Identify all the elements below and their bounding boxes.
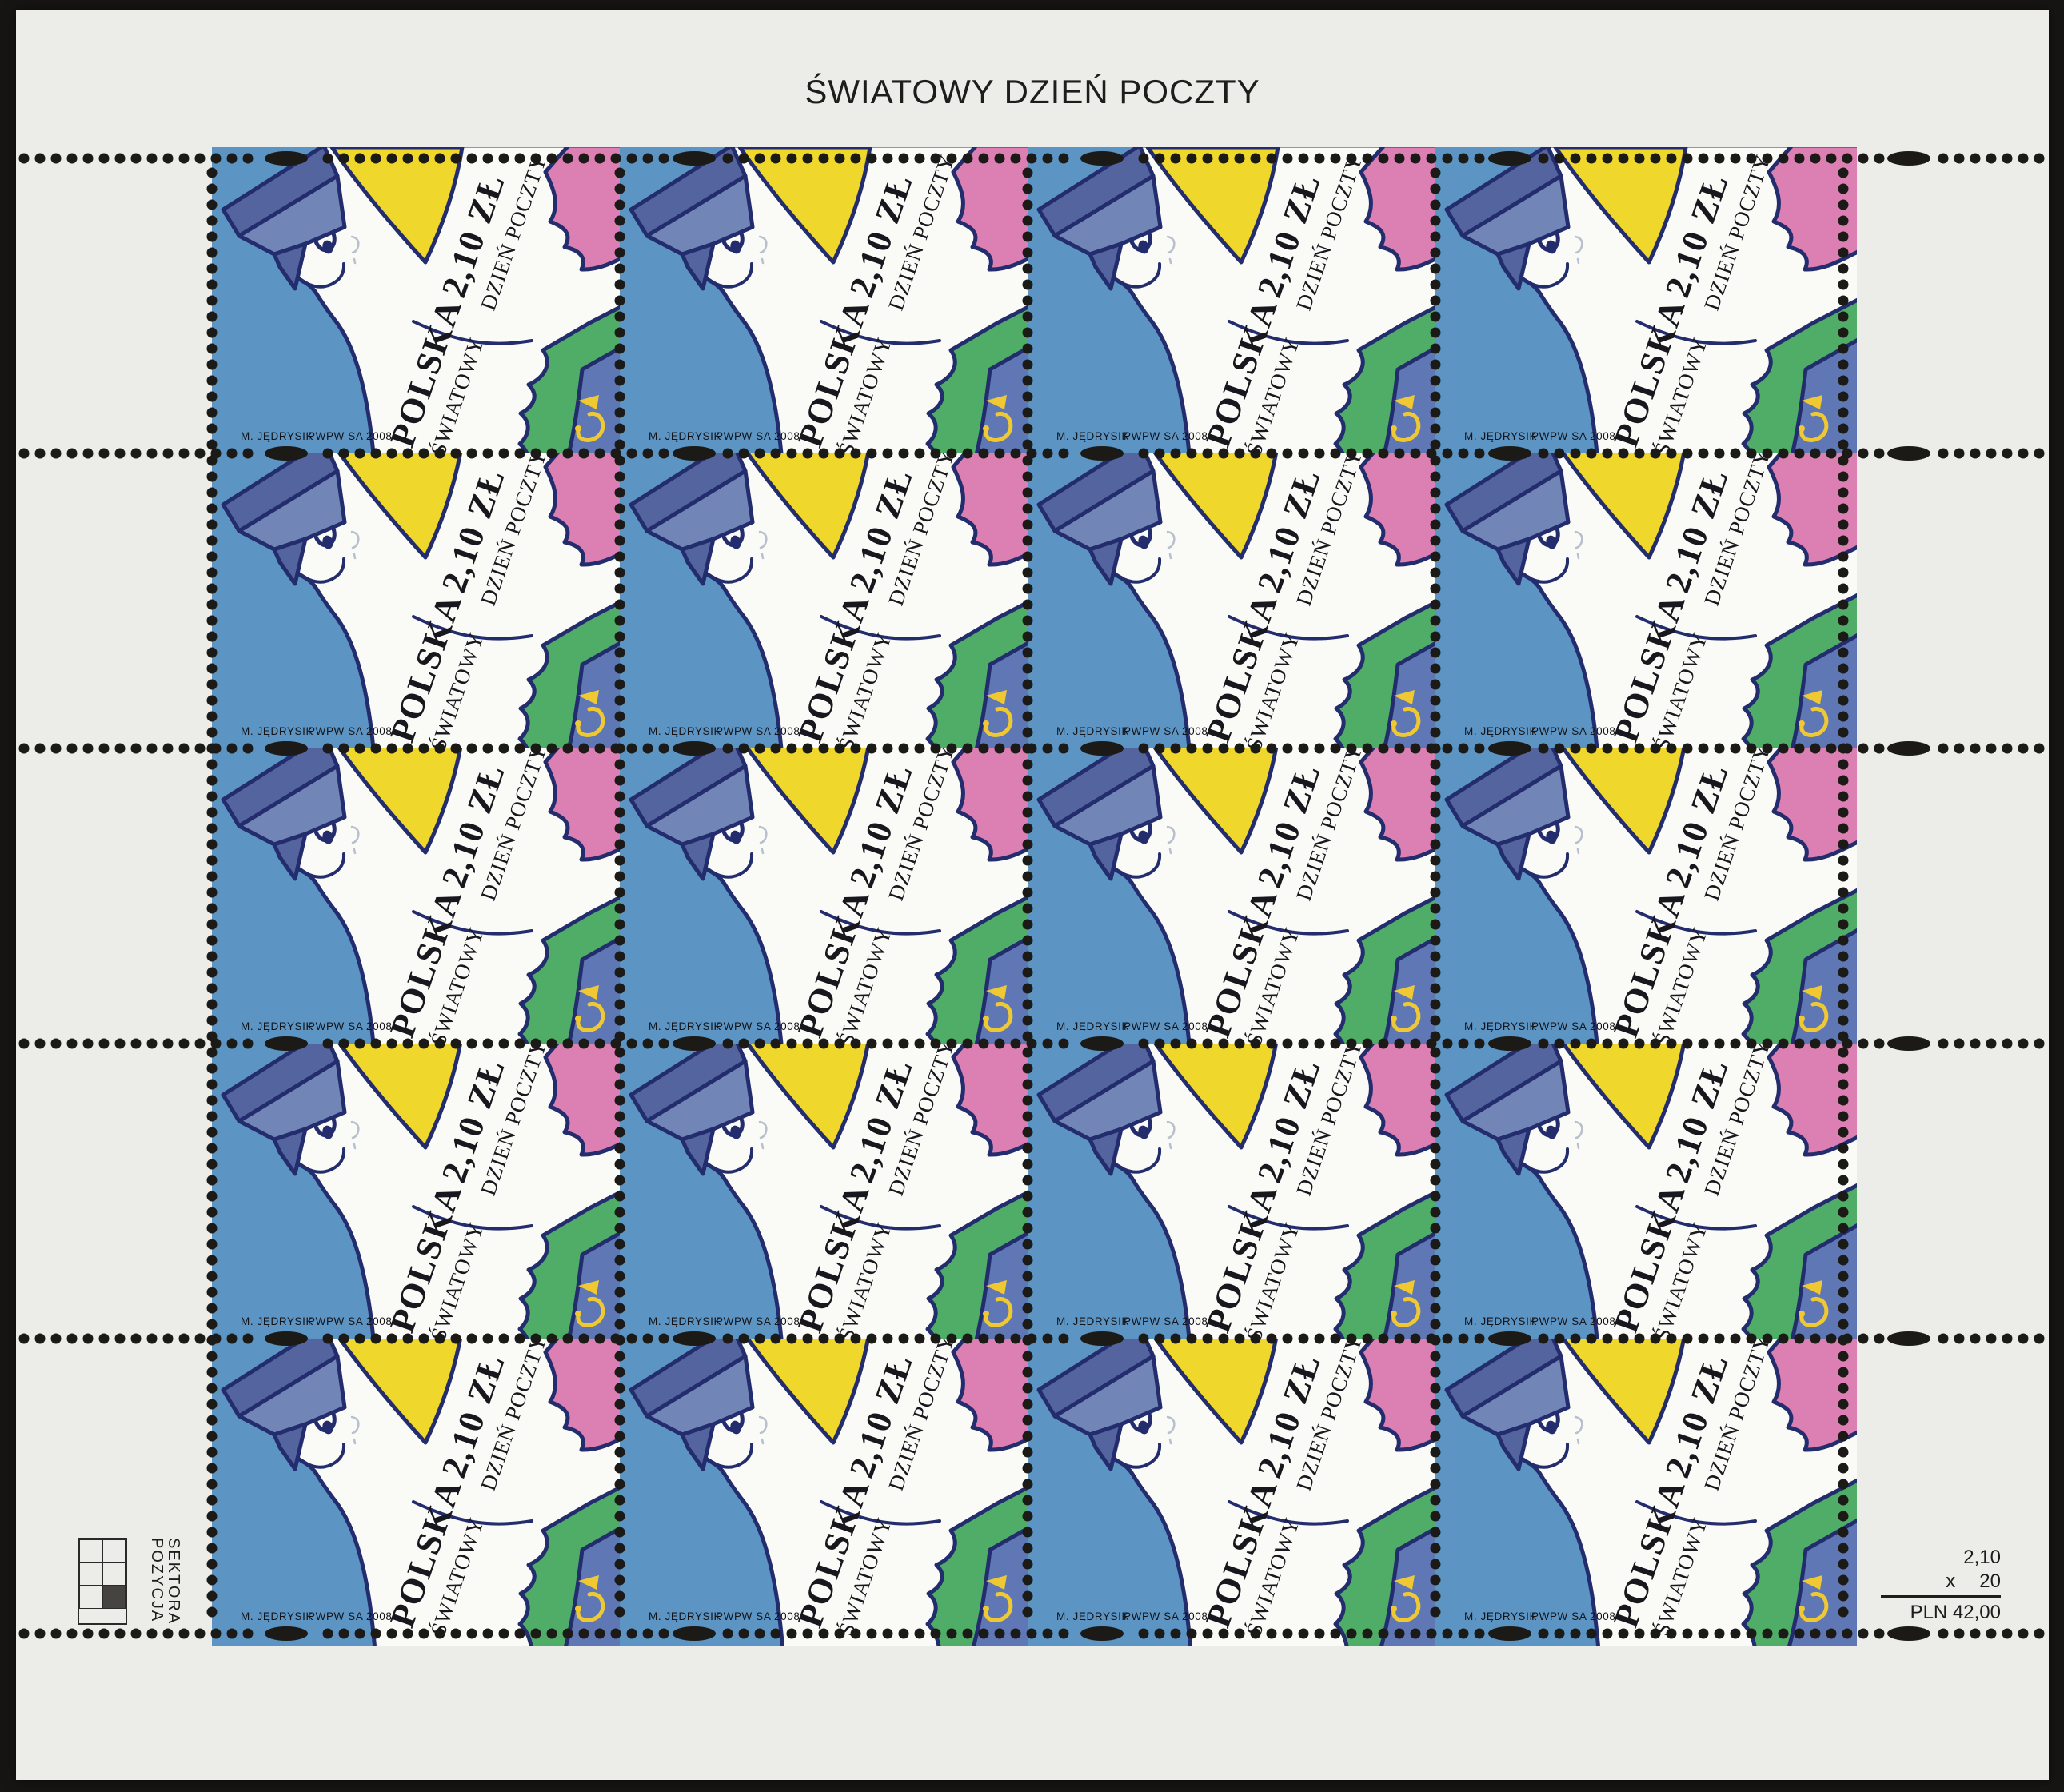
stamp: POLSKA 2,10 ZŁ ŚWIATOWY DZIEŃ POCZTY M. … <box>1028 748 1435 1044</box>
stamp: POLSKA 2,10 ZŁ ŚWIATOWY DZIEŃ POCZTY M. … <box>620 1044 1028 1339</box>
designer-imprint: M. JĘDRYSIK <box>1056 1020 1129 1032</box>
price-calculation: 2,10 x 20 PLN 42,00 <box>1881 1546 2001 1625</box>
printer-imprint: PWPW SA 2008 <box>308 1610 393 1622</box>
printer-imprint: PWPW SA 2008 <box>716 725 800 737</box>
printer-imprint: PWPW SA 2008 <box>716 1315 800 1327</box>
designer-imprint: M. JĘDRYSIK <box>241 1315 313 1327</box>
stamp: POLSKA 2,10 ZŁ ŚWIATOWY DZIEŃ POCZTY M. … <box>1028 1339 1435 1646</box>
printer-imprint: PWPW SA 2008 <box>308 430 393 442</box>
printer-imprint: PWPW SA 2008 <box>308 725 393 737</box>
stamp: POLSKA 2,10 ZŁ ŚWIATOWY DZIEŃ POCZTY M. … <box>212 1339 620 1646</box>
printer-imprint: PWPW SA 2008 <box>308 1315 393 1327</box>
designer-imprint: M. JĘDRYSIK <box>649 1020 721 1032</box>
stamp: POLSKA 2,10 ZŁ ŚWIATOWY DZIEŃ POCZTY M. … <box>1028 147 1435 453</box>
scan-background: { "sheet": { "title": "ŚWIATOWY DZIEŃ PO… <box>0 0 2064 1792</box>
stamp: POLSKA 2,10 ZŁ ŚWIATOWY DZIEŃ POCZTY M. … <box>1435 1044 1857 1339</box>
sector-cell <box>102 1563 126 1586</box>
sheet-title: ŚWIATOWY DZIEŃ POCZTY <box>16 73 2049 111</box>
designer-imprint: M. JĘDRYSIK <box>241 1610 313 1622</box>
stamp: POLSKA 2,10 ZŁ ŚWIATOWY DZIEŃ POCZTY M. … <box>1435 453 1857 748</box>
total-price: PLN 42,00 <box>1881 1601 2001 1625</box>
stamp: POLSKA 2,10 ZŁ ŚWIATOWY DZIEŃ POCZTY M. … <box>212 1044 620 1339</box>
multiply-sign: x <box>1946 1570 1955 1594</box>
sector-cell <box>79 1563 102 1586</box>
printer-imprint: PWPW SA 2008 <box>1531 1020 1616 1032</box>
sector-marker-label: POZYCJA SEKTORA <box>148 1538 182 1625</box>
designer-imprint: M. JĘDRYSIK <box>1056 725 1129 737</box>
printer-imprint: PWPW SA 2008 <box>1124 1020 1208 1032</box>
designer-imprint: M. JĘDRYSIK <box>1464 1610 1537 1622</box>
sector-label-line2: SEKTORA <box>165 1538 182 1625</box>
stamp: POLSKA 2,10 ZŁ ŚWIATOWY DZIEŃ POCZTY M. … <box>1435 1339 1857 1646</box>
printer-imprint: PWPW SA 2008 <box>1124 725 1208 737</box>
printer-imprint: PWPW SA 2008 <box>1124 430 1208 442</box>
designer-imprint: M. JĘDRYSIK <box>241 725 313 737</box>
quantity: 20 <box>1979 1570 2001 1594</box>
designer-imprint: M. JĘDRYSIK <box>1464 725 1537 737</box>
designer-imprint: M. JĘDRYSIK <box>649 1610 721 1622</box>
stamp: POLSKA 2,10 ZŁ ŚWIATOWY DZIEŃ POCZTY M. … <box>1028 453 1435 748</box>
stamp: POLSKA 2,10 ZŁ ŚWIATOWY DZIEŃ POCZTY M. … <box>212 453 620 748</box>
printer-imprint: PWPW SA 2008 <box>716 1610 800 1622</box>
sector-cell <box>102 1539 126 1563</box>
sector-cell <box>79 1586 102 1609</box>
sector-cell-filled <box>102 1586 126 1609</box>
stamp: POLSKA 2,10 ZŁ ŚWIATOWY DZIEŃ POCZTY M. … <box>212 147 620 453</box>
printer-imprint: PWPW SA 2008 <box>1124 1610 1208 1622</box>
printer-imprint: PWPW SA 2008 <box>1531 1610 1616 1622</box>
sector-position-marker: POZYCJA SEKTORA <box>78 1538 182 1625</box>
stamp: POLSKA 2,10 ZŁ ŚWIATOWY DZIEŃ POCZTY M. … <box>1435 147 1857 453</box>
designer-imprint: M. JĘDRYSIK <box>241 1020 313 1032</box>
designer-imprint: M. JĘDRYSIK <box>649 430 721 442</box>
price-calc-operands: 2,10 x 20 <box>1881 1546 2001 1598</box>
sector-label-line1: POZYCJA <box>148 1538 165 1625</box>
designer-imprint: M. JĘDRYSIK <box>649 1315 721 1327</box>
stamp: POLSKA 2,10 ZŁ ŚWIATOWY DZIEŃ POCZTY M. … <box>620 748 1028 1044</box>
stamp: POLSKA 2,10 ZŁ ŚWIATOWY DZIEŃ POCZTY M. … <box>620 147 1028 453</box>
sector-cell <box>79 1539 102 1563</box>
designer-imprint: M. JĘDRYSIK <box>1464 1020 1537 1032</box>
designer-imprint: M. JĘDRYSIK <box>649 725 721 737</box>
designer-imprint: M. JĘDRYSIK <box>1464 430 1537 442</box>
designer-imprint: M. JĘDRYSIK <box>1056 1315 1129 1327</box>
stamp: POLSKA 2,10 ZŁ ŚWIATOWY DZIEŃ POCZTY M. … <box>1435 748 1857 1044</box>
printer-imprint: PWPW SA 2008 <box>308 1020 393 1032</box>
printer-imprint: PWPW SA 2008 <box>716 1020 800 1032</box>
designer-imprint: M. JĘDRYSIK <box>1056 430 1129 442</box>
stamp: POLSKA 2,10 ZŁ ŚWIATOWY DZIEŃ POCZTY M. … <box>1028 1044 1435 1339</box>
printer-imprint: PWPW SA 2008 <box>1531 725 1616 737</box>
stamp: POLSKA 2,10 ZŁ ŚWIATOWY DZIEŃ POCZTY M. … <box>620 453 1028 748</box>
stamp: POLSKA 2,10 ZŁ ŚWIATOWY DZIEŃ POCZTY M. … <box>620 1339 1028 1646</box>
unit-price: 2,10 <box>1881 1546 2001 1570</box>
designer-imprint: M. JĘDRYSIK <box>1056 1610 1129 1622</box>
printer-imprint: PWPW SA 2008 <box>716 430 800 442</box>
designer-imprint: M. JĘDRYSIK <box>241 430 313 442</box>
sector-grid <box>78 1538 127 1625</box>
printer-imprint: PWPW SA 2008 <box>1531 1315 1616 1327</box>
stamp: POLSKA 2,10 ZŁ ŚWIATOWY DZIEŃ POCZTY M. … <box>212 748 620 1044</box>
printer-imprint: PWPW SA 2008 <box>1124 1315 1208 1327</box>
printer-imprint: PWPW SA 2008 <box>1531 430 1616 442</box>
designer-imprint: M. JĘDRYSIK <box>1464 1315 1537 1327</box>
